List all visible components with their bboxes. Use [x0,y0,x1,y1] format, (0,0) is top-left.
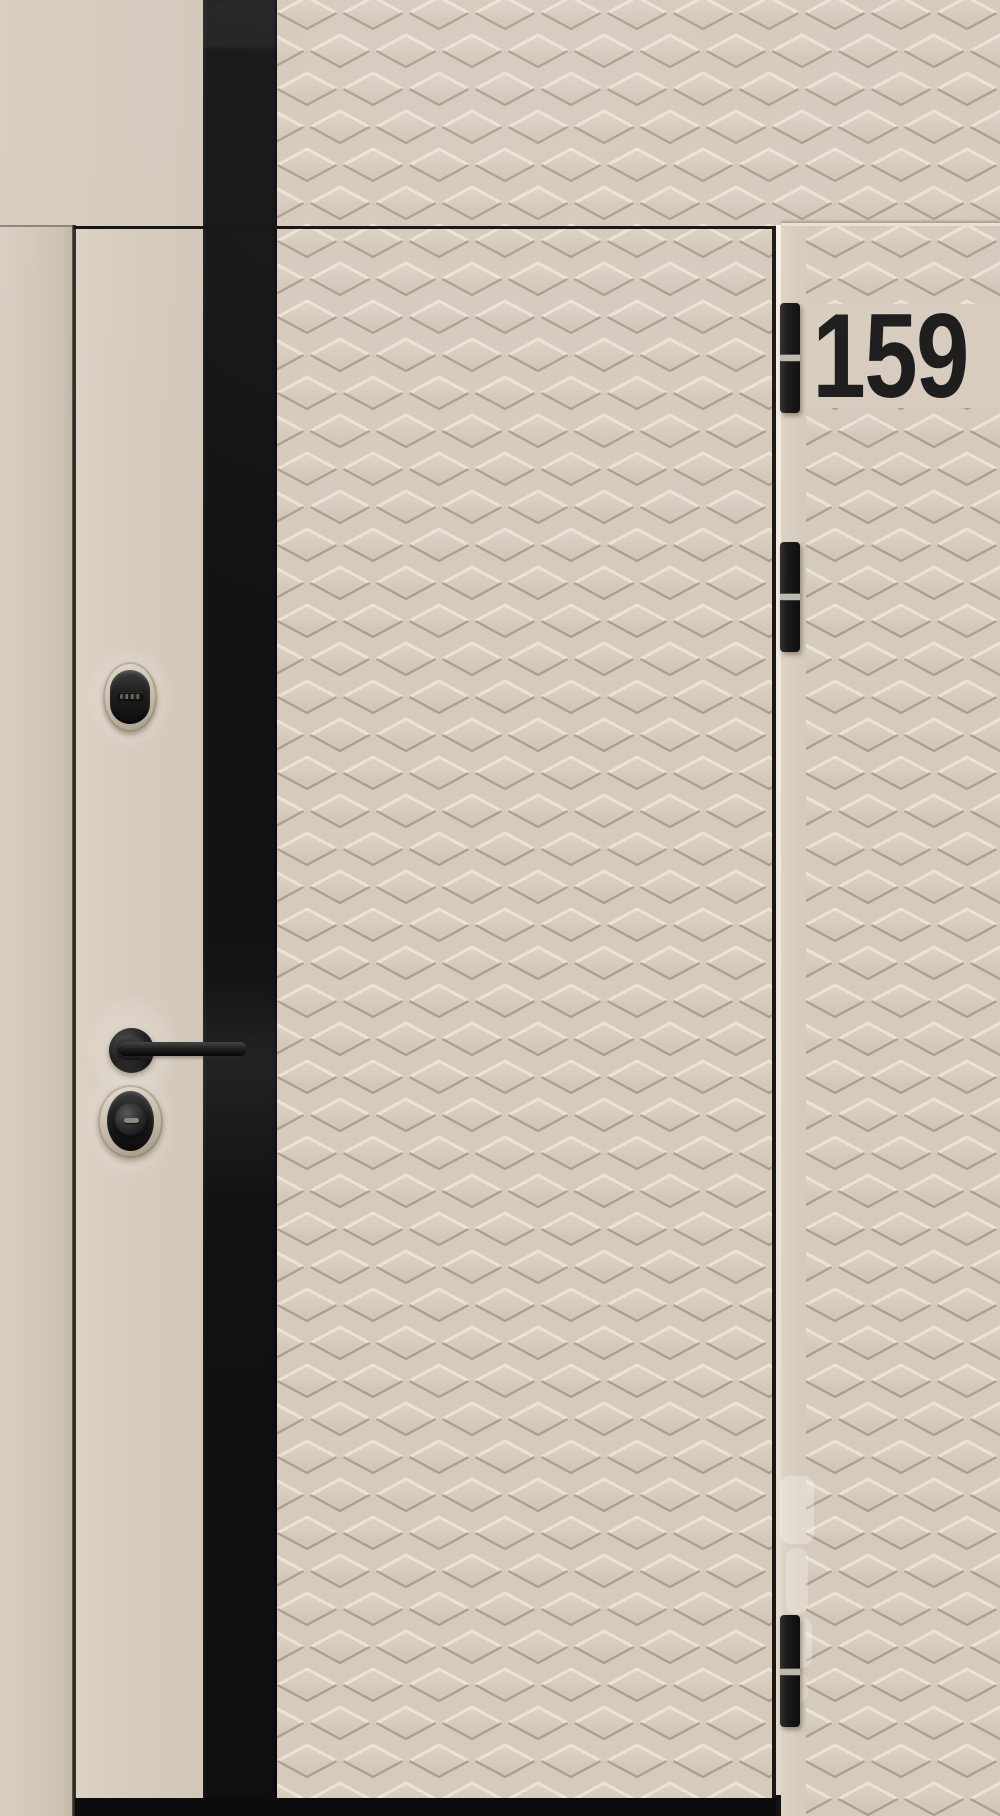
door-photo: 159 [0,0,1000,1816]
light-vignette [0,0,1000,1816]
